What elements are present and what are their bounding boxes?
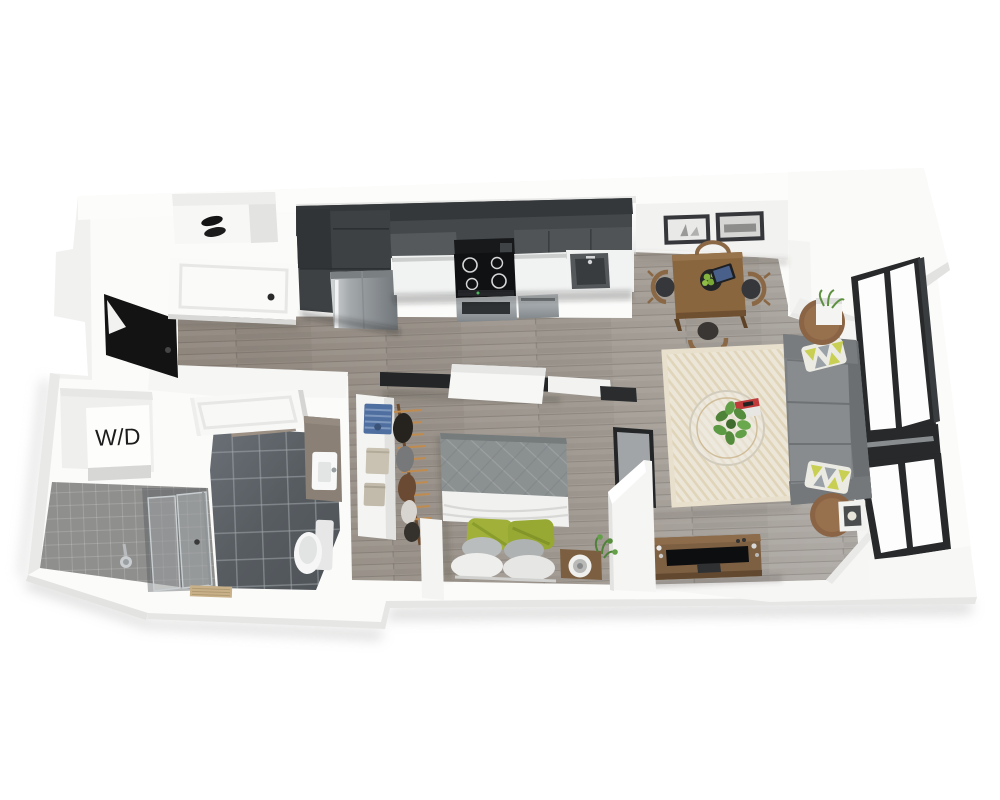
svg-text:W/D: W/D: [95, 423, 141, 451]
